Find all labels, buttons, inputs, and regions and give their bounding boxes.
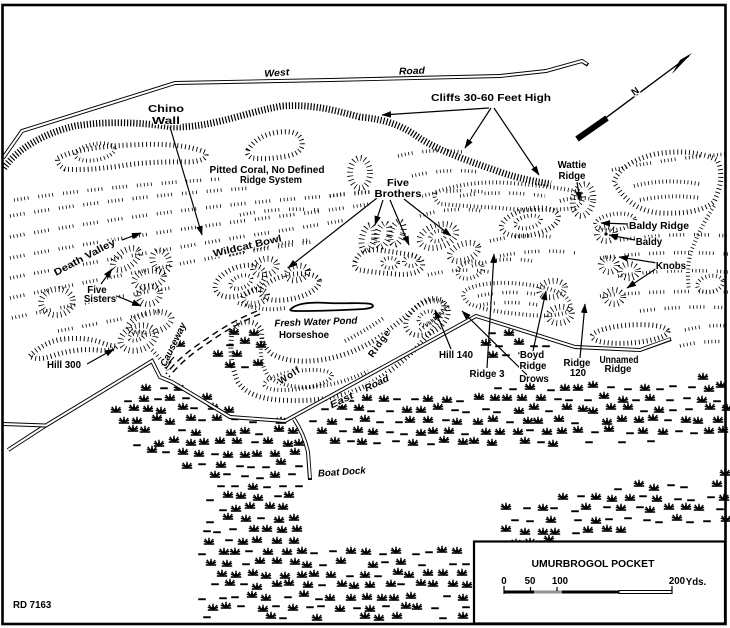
svg-text:200: 200 <box>669 576 685 587</box>
svg-text:Ridge: Ridge <box>559 171 587 182</box>
svg-text:Chino: Chino <box>148 104 184 115</box>
svg-text:Boyd: Boyd <box>520 350 544 361</box>
svg-text:120: 120 <box>570 368 586 379</box>
svg-text:Baldy: Baldy <box>636 237 663 248</box>
svg-text:50: 50 <box>525 576 536 587</box>
svg-text:Baldy Ridge: Baldy Ridge <box>629 221 690 232</box>
svg-text:Road: Road <box>399 66 427 78</box>
svg-text:0: 0 <box>501 576 506 587</box>
svg-text:Brothers: Brothers <box>375 189 422 200</box>
svg-text:Five: Five <box>387 178 410 189</box>
svg-text:Wattie: Wattie <box>558 160 587 171</box>
svg-text:Hill 300: Hill 300 <box>47 360 81 371</box>
svg-text:Knobs: Knobs <box>656 261 686 272</box>
svg-text:Cliffs 30-60 Feet High: Cliffs 30-60 Feet High <box>431 93 551 104</box>
svg-text:Drows: Drows <box>519 374 549 385</box>
svg-text:Hill 140: Hill 140 <box>439 350 473 361</box>
svg-text:Wall: Wall <box>152 116 180 127</box>
svg-text:Yds.: Yds. <box>686 577 707 588</box>
svg-text:Ridge System: Ridge System <box>240 175 302 186</box>
svg-text:Ridge: Ridge <box>605 364 633 375</box>
svg-text:Ridge: Ridge <box>520 361 548 372</box>
svg-text:Ridge 3: Ridge 3 <box>470 369 506 380</box>
svg-text:100: 100 <box>552 576 568 587</box>
svg-text:Horseshoe: Horseshoe <box>279 330 330 341</box>
svg-text:West: West <box>264 67 291 80</box>
svg-text:UMURBROGOL POCKET: UMURBROGOL POCKET <box>532 559 655 570</box>
svg-text:RD 7163: RD 7163 <box>13 600 52 611</box>
svg-text:Sisters: Sisters <box>84 294 116 305</box>
